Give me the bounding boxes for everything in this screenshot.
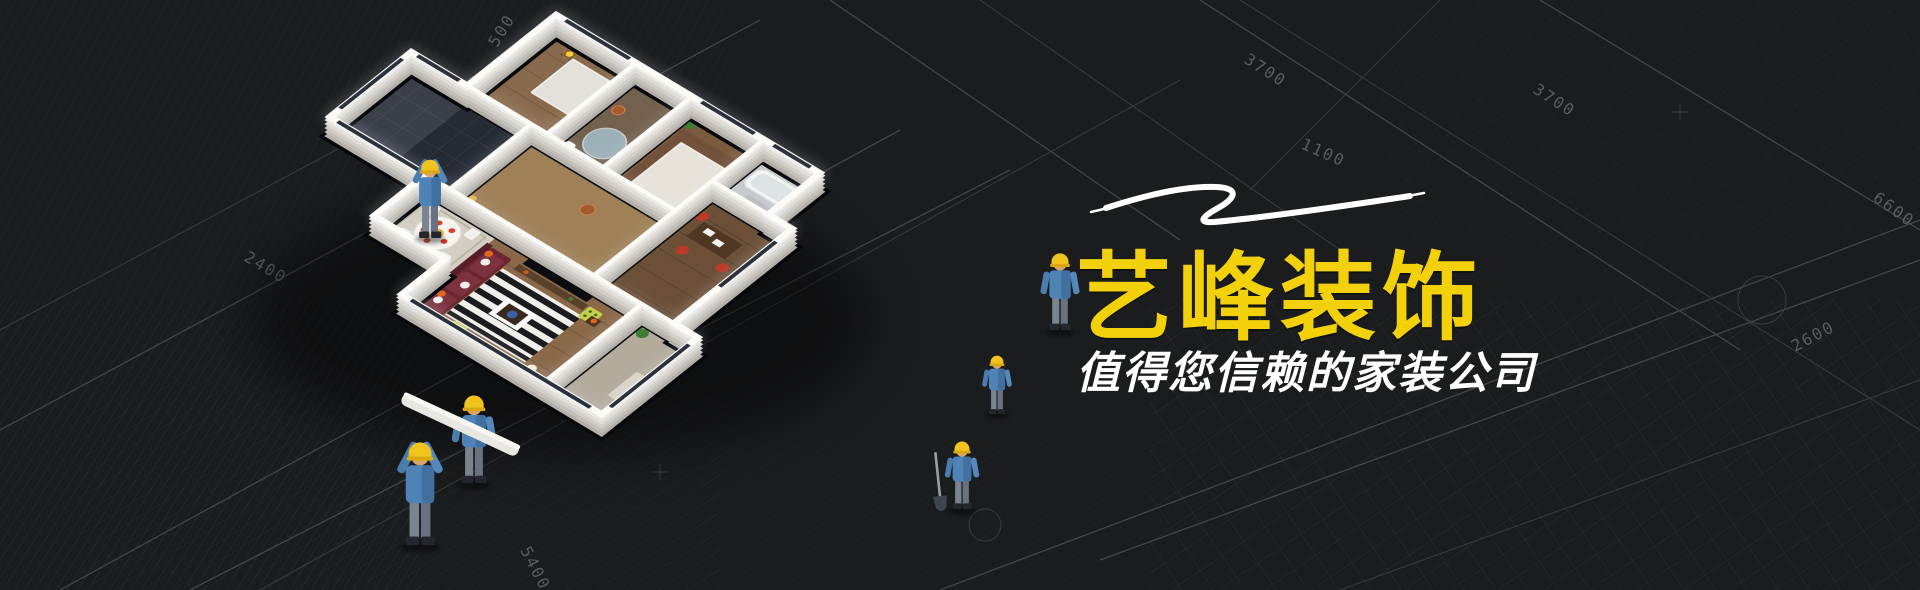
- banner-artwork: 3700 1100 3700 6600 2600 2400 5400 500: [0, 0, 1920, 590]
- brand-title: 艺峰装饰: [1076, 250, 1484, 346]
- hero-banner: 3700 1100 3700 6600 2600 2400 5400 500: [0, 0, 1920, 590]
- brand-subtitle: 值得您信赖的家装公司: [1076, 352, 1536, 396]
